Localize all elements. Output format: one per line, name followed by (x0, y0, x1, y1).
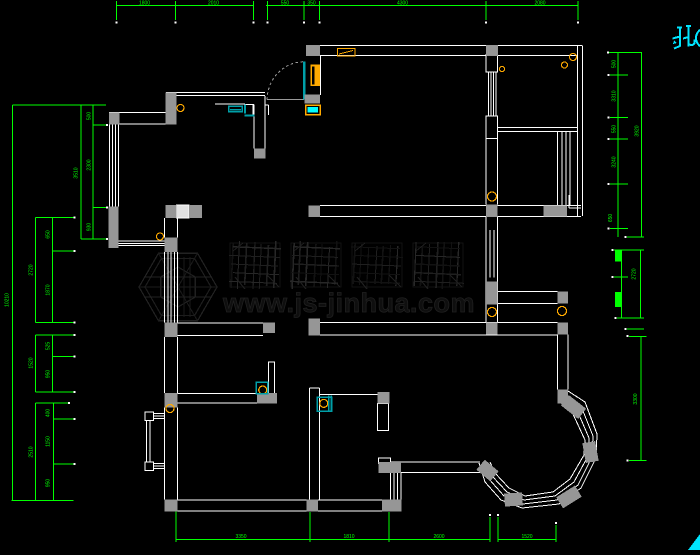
svg-text:1810: 1810 (343, 534, 354, 540)
svg-text:3310: 3310 (612, 90, 618, 101)
svg-text:2510: 2510 (29, 446, 35, 457)
svg-text:3350: 3350 (235, 534, 246, 540)
svg-text:930: 930 (87, 223, 93, 232)
svg-text:2720: 2720 (632, 268, 638, 279)
svg-text:1150: 1150 (46, 436, 52, 447)
svg-text:2010: 2010 (208, 1, 219, 7)
svg-text:1520: 1520 (521, 534, 532, 540)
svg-text:550: 550 (281, 1, 290, 7)
svg-text:400: 400 (46, 409, 52, 418)
svg-text:3510: 3510 (74, 167, 80, 178)
svg-text:2300: 2300 (87, 159, 93, 170)
svg-text:1520: 1520 (29, 357, 35, 368)
svg-text:3240: 3240 (612, 156, 618, 167)
svg-text:3920: 3920 (635, 125, 641, 136)
svg-text:525: 525 (46, 342, 52, 351)
svg-text:www.js-jinhua.com: www.js-jinhua.com (222, 288, 475, 318)
svg-text:2600: 2600 (433, 534, 444, 540)
svg-text:3300: 3300 (633, 393, 639, 404)
svg-text:950: 950 (46, 479, 52, 488)
svg-text:2080: 2080 (534, 1, 545, 7)
svg-text:1870: 1870 (46, 284, 52, 295)
svg-text:950: 950 (46, 370, 52, 379)
svg-text:500: 500 (612, 60, 618, 69)
svg-text:650: 650 (608, 214, 614, 223)
svg-text:2720: 2720 (29, 264, 35, 275)
svg-text:350: 350 (307, 1, 316, 7)
svg-text:500: 500 (87, 112, 93, 121)
svg-text:550: 550 (612, 125, 618, 134)
svg-text:650: 650 (46, 230, 52, 239)
svg-text:4300: 4300 (397, 1, 408, 7)
svg-text:1800: 1800 (139, 1, 150, 7)
svg-text:10210: 10210 (5, 293, 11, 307)
